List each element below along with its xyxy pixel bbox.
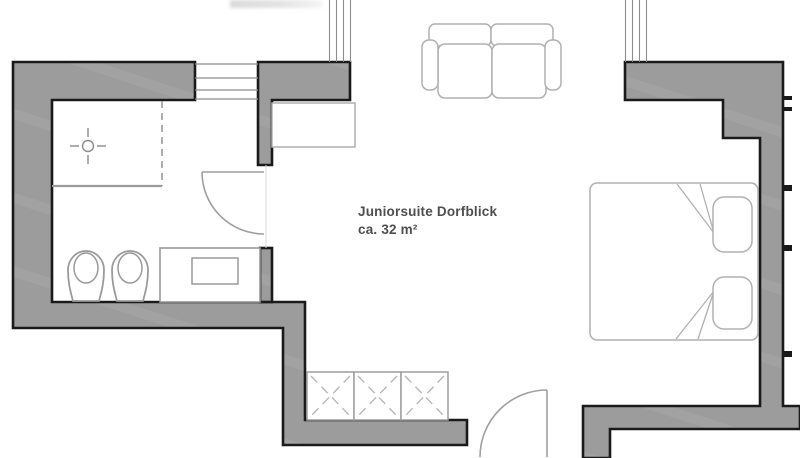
wall-post-bathroom-door [260, 248, 272, 302]
room-name: Juniorsuite Dorfblick [358, 203, 497, 221]
toilet-icon [68, 251, 104, 301]
window-tick [782, 96, 792, 100]
bidet-icon [112, 251, 148, 301]
wardrobe [272, 103, 355, 147]
window-tick [783, 185, 792, 191]
pillow [713, 277, 752, 329]
closet-units [307, 372, 448, 420]
room-label: Juniorsuite Dorfblick ca. 32 m² [358, 203, 497, 239]
entrance-door-swing [480, 390, 547, 457]
floor-plan: Juniorsuite Dorfblick ca. 32 m² [0, 0, 800, 458]
sofa-armrest [545, 40, 561, 90]
pillow [713, 197, 752, 252]
room-area: ca. 32 m² [358, 221, 497, 239]
drain-circle [83, 141, 94, 152]
sofa-seat-cushion [492, 44, 546, 98]
top-window [195, 64, 258, 99]
bathroom-door-swing [202, 172, 264, 234]
balcony-railing-right [626, 0, 647, 62]
toilet-body [68, 251, 104, 301]
floor-drain-icon [70, 128, 106, 164]
washbasin-counter [160, 248, 260, 302]
bed-icon [590, 183, 758, 340]
window-tick [783, 351, 792, 357]
bidet-body [112, 251, 148, 301]
balcony-railing-left [330, 0, 351, 62]
sofa-icon [422, 24, 561, 98]
sofa-armrest [422, 40, 438, 90]
sofa-back-cushion [429, 24, 491, 46]
sofa-seat-cushion [438, 44, 492, 98]
window-tick [783, 245, 792, 251]
window-tick [782, 107, 792, 111]
sofa-back-cushion [491, 24, 553, 46]
